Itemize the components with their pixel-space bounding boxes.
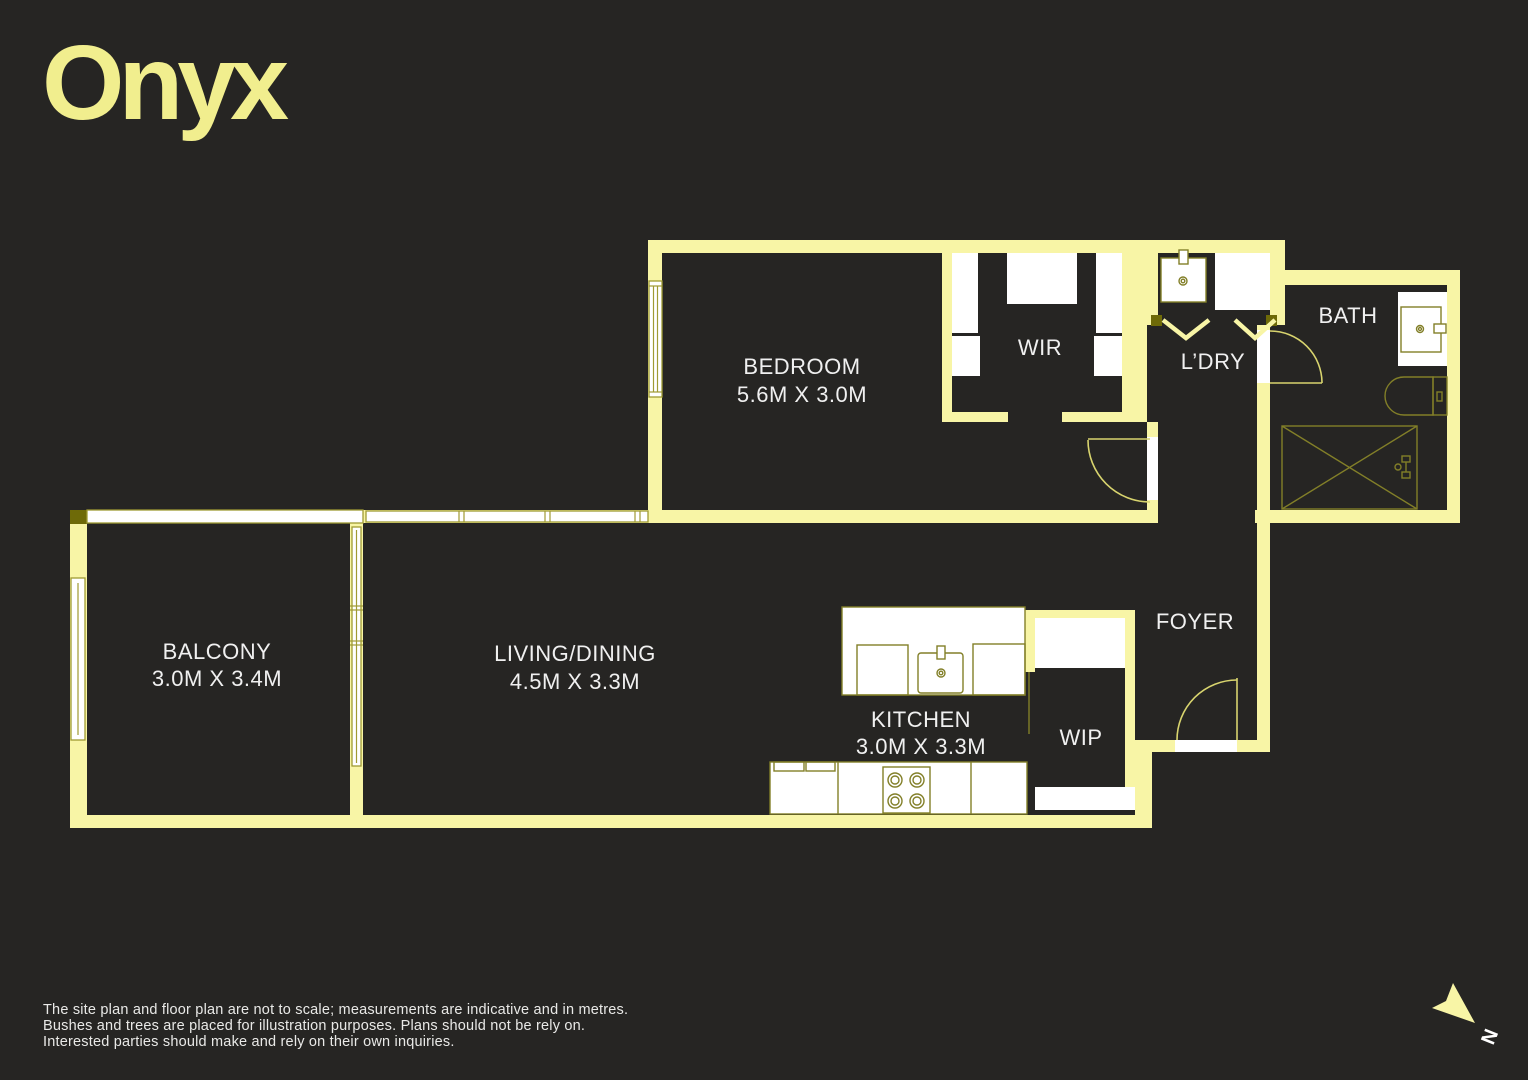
disclaimer-line-1: The site plan and floor plan are not to …: [43, 1002, 628, 1018]
bedroom-door: [1088, 439, 1150, 502]
disclaimer-line-3: Interested parties should make and rely …: [43, 1034, 628, 1050]
kitchen-label: KITCHEN: [871, 707, 971, 732]
laundry-tub: [1161, 250, 1206, 302]
ldry-label: L’DRY: [1181, 349, 1245, 374]
wip-shelves: [1029, 618, 1135, 810]
bath-door: [1270, 331, 1322, 383]
living-dims: 4.5M X 3.3M: [510, 669, 640, 694]
balcony-railing: [87, 510, 363, 523]
foyer-label: FOYER: [1156, 609, 1234, 634]
entry-door: [1177, 678, 1237, 740]
kitchen-dims: 3.0M X 3.3M: [856, 734, 986, 759]
bath-label: BATH: [1318, 303, 1377, 328]
shower-mixer-icon: [1395, 456, 1410, 478]
room-labels: BEDROOM 5.6M X 3.0M WIR L’DRY BATH BALCO…: [152, 303, 1378, 759]
living-label: LIVING/DINING: [494, 641, 656, 666]
dryer-shelf: [1215, 253, 1270, 310]
door-openings: [1147, 330, 1270, 752]
bath-door-opening: [1257, 330, 1270, 383]
wip-label: WIP: [1059, 725, 1102, 750]
bedroom-dims: 5.6M X 3.0M: [737, 382, 867, 407]
disclaimer-text: The site plan and floor plan are not to …: [43, 1002, 628, 1050]
entry-door-opening: [1175, 740, 1237, 752]
toilet: [1385, 377, 1447, 415]
living-window-band: [366, 511, 648, 522]
disclaimer-line-2: Bushes and trees are placed for illustra…: [43, 1018, 628, 1034]
balcony-label: BALCONY: [163, 639, 272, 664]
balcony-dims: 3.0M X 3.4M: [152, 666, 282, 691]
walls: [70, 240, 1460, 828]
floor-plan: BEDROOM 5.6M X 3.0M WIR L’DRY BATH BALCO…: [0, 0, 1528, 1080]
bedroom-window: [649, 281, 662, 397]
bedroom-door-opening: [1147, 437, 1158, 500]
wir-label: WIR: [1018, 335, 1062, 360]
kitchen-island-counter: [842, 607, 1025, 695]
north-label: N: [1476, 1025, 1502, 1047]
shower: [1282, 426, 1417, 509]
bath-vanity: [1398, 292, 1447, 366]
balcony-side-window: [71, 578, 85, 740]
north-arrow-icon: N: [1432, 983, 1502, 1047]
floorplan-page: Onyx: [0, 0, 1528, 1080]
balcony-sliding-door: [350, 527, 363, 766]
bedroom-label: BEDROOM: [743, 354, 860, 379]
kitchen-wall-counter: [770, 762, 1027, 814]
